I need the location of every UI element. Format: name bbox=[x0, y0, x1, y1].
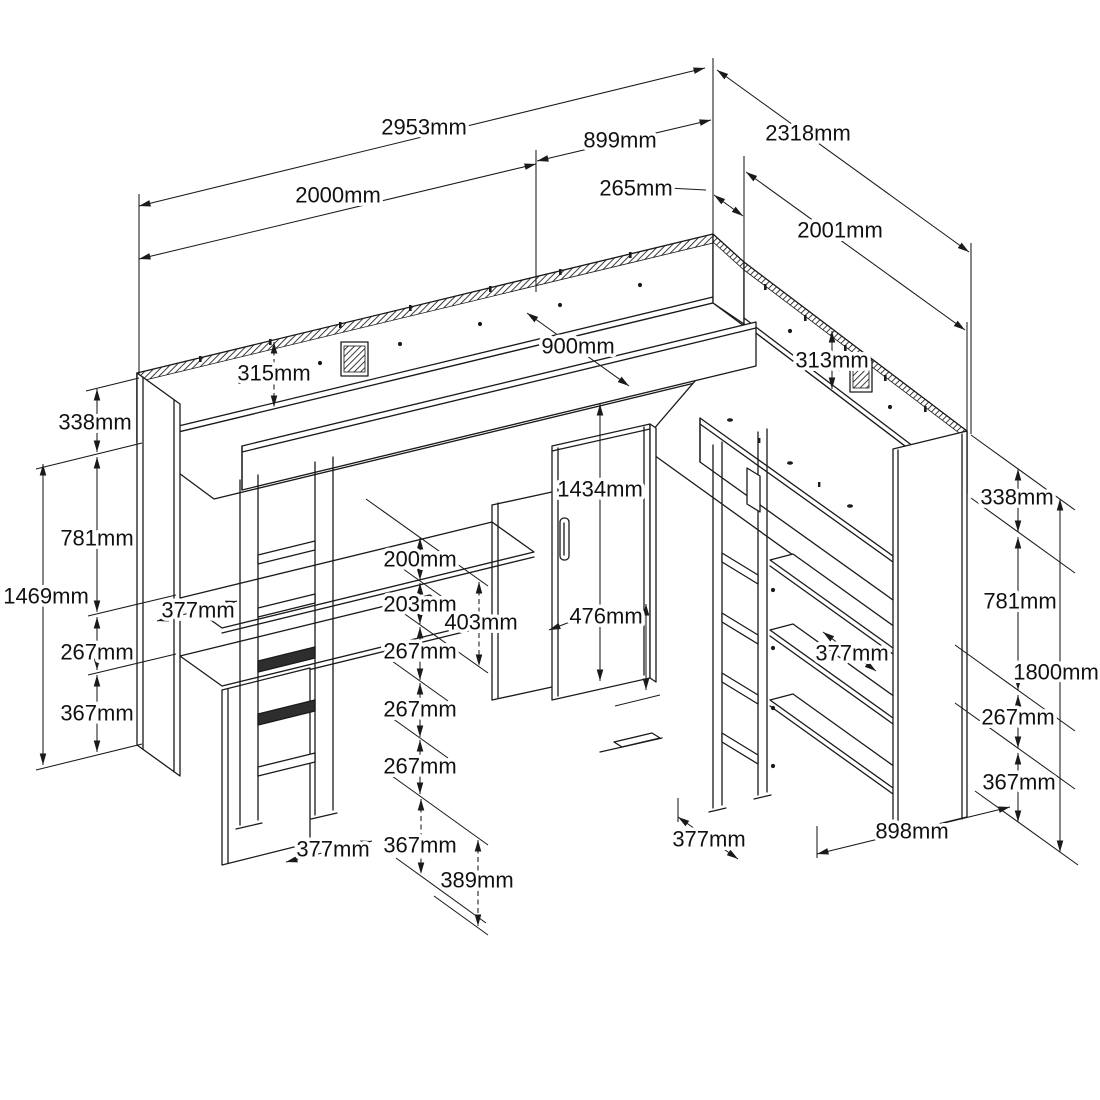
dim-367-right-label: 367mm bbox=[982, 770, 1055, 795]
wardrobe-cabinet bbox=[492, 492, 552, 700]
dim-315-label: 315mm bbox=[237, 361, 310, 386]
dim-377-bottom-mid-label: 377mm bbox=[672, 827, 745, 852]
dim-389-label: 389mm bbox=[440, 868, 513, 893]
left-headboard-panel bbox=[137, 373, 180, 776]
dim-267-mid-3-label: 267mm bbox=[383, 754, 456, 779]
door-handle bbox=[560, 518, 569, 560]
dim-377-right-shelf-label: 377mm bbox=[815, 641, 888, 666]
dim-2953-label: 2953mm bbox=[381, 115, 467, 140]
dim-313-label: 313mm bbox=[795, 348, 868, 373]
dim-1800-label: 1800mm bbox=[1013, 660, 1099, 685]
dim-265-label: 265mm bbox=[599, 176, 672, 201]
dim-2001-label: 2001mm bbox=[797, 218, 883, 243]
dim-200-label: 200mm bbox=[383, 547, 456, 572]
dim-781-left-label: 781mm bbox=[60, 526, 133, 551]
dim-1434-label: 1434mm bbox=[557, 477, 643, 502]
dim-267-left-label: 267mm bbox=[60, 640, 133, 665]
dim-899-label: 899mm bbox=[583, 128, 656, 153]
dim-900-label: 900mm bbox=[541, 334, 614, 359]
dim-1469-label: 1469mm bbox=[3, 584, 89, 609]
dim-367-left-label: 367mm bbox=[60, 701, 133, 726]
dim-377-left-shelf-label: 377mm bbox=[161, 598, 234, 623]
dim-338-right-label: 338mm bbox=[980, 485, 1053, 510]
technical-drawing-page: 2953mm 899mm 2318mm 265mm 2000mm 2001mm … bbox=[0, 0, 1100, 1100]
wardrobe-door bbox=[552, 424, 656, 700]
dim-267-right-label: 267mm bbox=[981, 705, 1054, 730]
dim-377-bottom-left-label: 377mm bbox=[296, 837, 369, 862]
dim-403-label: 403mm bbox=[444, 610, 517, 635]
dim-476-label: 476mm bbox=[569, 604, 642, 629]
door-base-feet bbox=[600, 733, 662, 752]
right-headboard-panel bbox=[893, 431, 967, 835]
dim-2318-label: 2318mm bbox=[765, 121, 851, 146]
dim-367-mid-label: 367mm bbox=[383, 833, 456, 858]
dim-781-right-label: 781mm bbox=[983, 589, 1056, 614]
dim-267-mid-1-label: 267mm bbox=[383, 639, 456, 664]
dim-338-left-label: 338mm bbox=[58, 410, 131, 435]
left-vent-grille bbox=[341, 342, 368, 376]
dim-898-label: 898mm bbox=[875, 819, 948, 844]
dim-267-mid-2-label: 267mm bbox=[383, 697, 456, 722]
loft-bed-dimension-drawing: 2953mm 899mm 2318mm 265mm 2000mm 2001mm … bbox=[0, 0, 1100, 1100]
dim-2000-label: 2000mm bbox=[295, 183, 381, 208]
